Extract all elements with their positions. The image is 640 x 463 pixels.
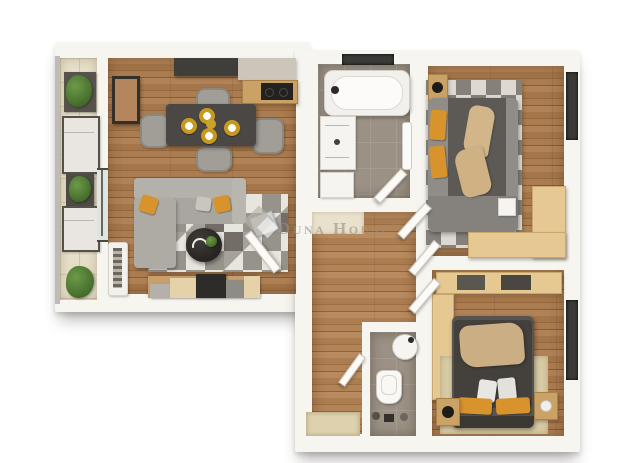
dining-chair-right [252,118,284,154]
dresser-inset-1 [457,275,485,290]
wc-washbasin [392,334,418,360]
bedroom1-wardrobe-horizontal [468,232,566,258]
sofa-pillow-orange-2 [213,195,232,214]
balcony-side-table [66,174,94,206]
bedroom1-pillow-2 [428,145,447,178]
wc [362,322,428,448]
bedroom2-nightstand-right [534,392,558,420]
wc-accessory [400,413,408,421]
bathroom-cabinet [320,172,354,198]
balcony-door-glass [97,168,108,242]
console-box-cream-1 [170,278,196,298]
bedroom1-pillow-1 [429,109,447,140]
wc-accessory [372,412,380,420]
console-box-gray-1 [150,284,170,298]
balcony-planter-top [64,72,96,112]
balcony [55,56,97,304]
bedroom2-lamp-right [540,400,552,412]
chair-cushion-seam [64,132,94,133]
lounge-chair-1 [62,116,100,174]
bedroom2-headboard [452,416,534,428]
lounge-chair-2 [62,206,100,252]
washer-detail-line [325,157,349,158]
decor-panel-pattern [113,248,122,288]
sofa-pillow-gray [195,196,212,212]
toilet-seat [381,375,397,395]
washer-knob [334,139,340,145]
bedroom2-pillow-orange-1 [458,397,493,415]
place-setting [224,120,240,136]
kitchen-counter-light [238,58,296,80]
wall-picture [112,76,140,124]
burner [265,88,274,97]
table-centerpiece [206,119,216,129]
plant [66,75,92,107]
bedroom2-pillow-orange-2 [496,397,531,415]
bedroom2-lamp-left [442,406,454,418]
watermark-text: Duna House® [278,219,397,239]
dining-table [166,104,256,146]
burner [279,88,288,97]
decor-panel [108,242,128,296]
bathroom-window [342,54,394,65]
wc-accessory [384,414,394,422]
kitchen-cabinet [242,80,298,104]
towel-rail [402,122,412,170]
watermark-brand-name: Duna House [278,219,391,238]
bathtub [324,70,410,116]
hall-doormat [306,412,360,436]
bedroom2-nightstand-left [436,398,460,426]
bedroom2-dresser [436,272,562,294]
bathtub-faucet [331,86,339,94]
bedroom2-window [566,300,578,380]
bathtub-basin [331,76,403,110]
coffee-table [186,228,222,262]
place-setting [201,128,217,144]
console-box-cream-2 [244,276,260,298]
cooktop [261,83,293,100]
bedroom1-lamp [432,82,443,93]
floor-plan-render: Duna House® [0,0,640,463]
washer-detail-line [325,125,349,126]
place-setting [181,118,197,134]
registered-mark: ® [391,220,397,229]
bedroom1-tray [498,198,516,216]
washing-machine [320,116,356,170]
bedroom2-blanket [459,322,526,368]
wc-toilet [376,370,402,404]
door-frame-line [101,170,103,236]
basin-faucet [408,337,414,343]
plant [69,176,91,202]
sofa-armrest [232,178,246,224]
console-box-dark [196,274,226,298]
kitchen-counter-dark [174,58,238,76]
dining-chair-bottom [196,146,232,172]
bedroom1-window [566,72,578,140]
table-plant [206,236,217,247]
dresser-inset-2 [501,275,531,290]
chair-cushion-seam [64,220,94,221]
console-box-gray-2 [226,280,244,298]
